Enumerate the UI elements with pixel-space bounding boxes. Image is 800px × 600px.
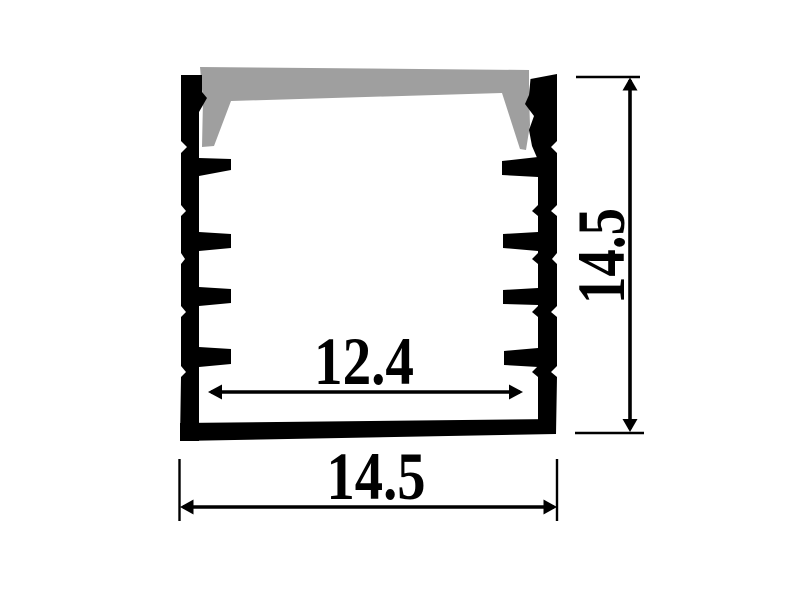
svg-text:14.5: 14.5 [327, 439, 426, 514]
svg-text:12.4: 12.4 [314, 324, 414, 399]
svg-text:14.5: 14.5 [564, 208, 639, 304]
